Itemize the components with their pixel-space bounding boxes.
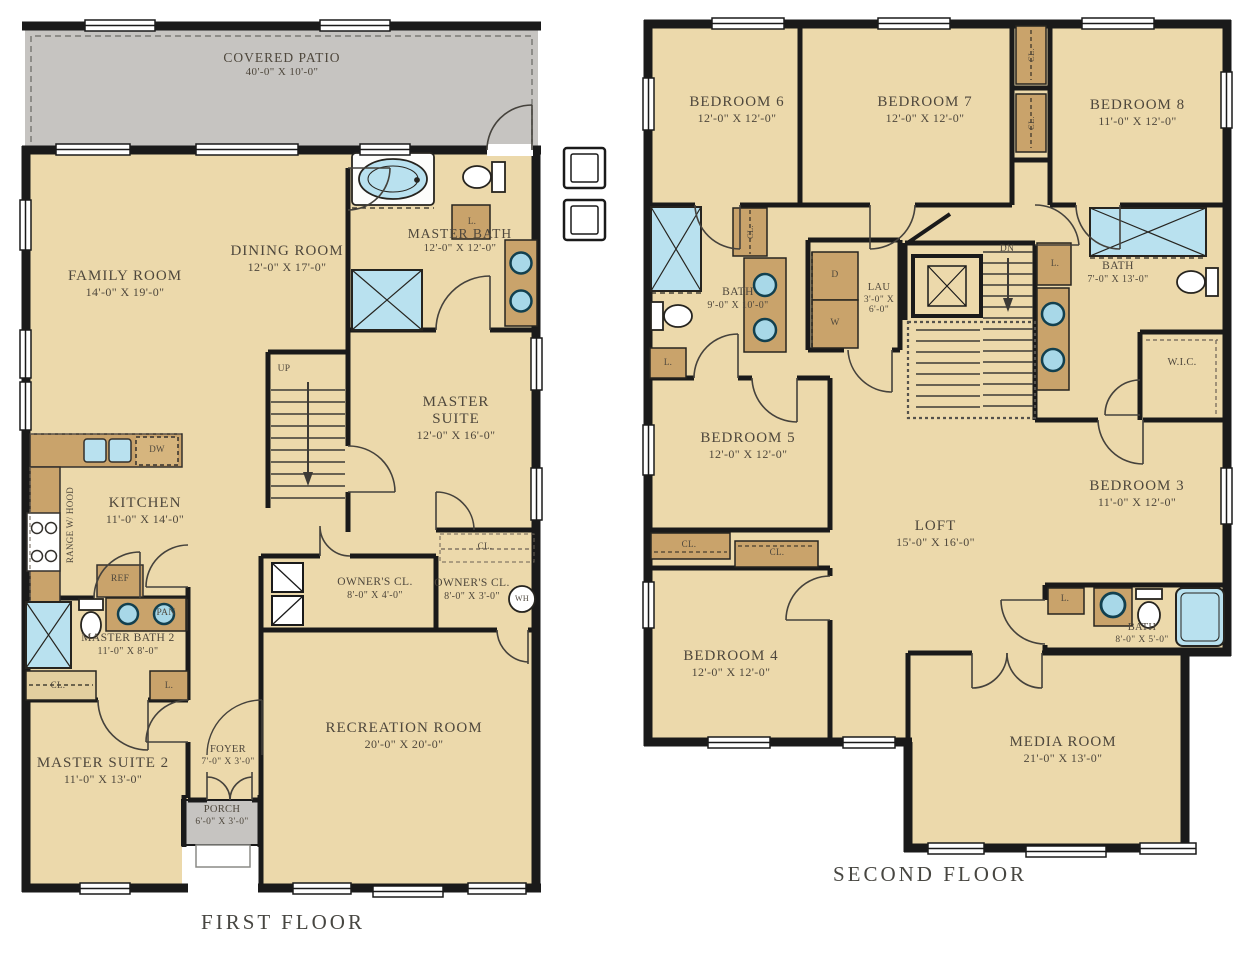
washer-label: W xyxy=(821,318,849,328)
wic-label: W.I.C. xyxy=(1150,357,1214,368)
first-floor-title: FIRST FLOOR xyxy=(133,910,433,935)
toilet xyxy=(492,162,505,192)
closet-label: CL. xyxy=(1026,98,1036,148)
water-heater-label: WH xyxy=(508,594,536,603)
sink xyxy=(754,319,776,341)
porch-area xyxy=(182,800,262,845)
sink xyxy=(118,604,138,624)
floorplan-page: COVERED PATIO 40'-0" X 10'-0" FAMILY ROO… xyxy=(0,0,1240,960)
floorplan-graphics xyxy=(0,0,1240,960)
linen-label: L. xyxy=(154,680,184,690)
toilet xyxy=(1206,268,1218,296)
sink xyxy=(754,274,776,296)
sink xyxy=(1042,303,1064,325)
up-label: UP xyxy=(268,364,300,374)
pantry-label: PAN xyxy=(147,608,185,618)
toilet xyxy=(1136,589,1162,599)
range xyxy=(27,513,60,571)
sink xyxy=(1101,593,1125,617)
second-floor-title: SECOND FLOOR xyxy=(780,862,1080,887)
closet-label: CL. xyxy=(756,547,798,557)
closet-label: CL. xyxy=(745,207,755,257)
closet-label: CL. xyxy=(668,539,710,549)
sink xyxy=(511,291,532,312)
kitchen-sink xyxy=(84,439,106,462)
second-floor-plan xyxy=(643,18,1232,857)
toilet xyxy=(651,302,663,330)
closet-label: CL. xyxy=(1026,30,1036,80)
linen-label: L. xyxy=(653,357,683,367)
linen-label: L. xyxy=(1040,258,1070,268)
sink xyxy=(511,253,532,274)
dishwasher-label: DW xyxy=(138,444,176,454)
dryer-label: D xyxy=(821,270,849,280)
porch-steps xyxy=(196,845,250,867)
first-floor-area xyxy=(25,150,538,888)
dn-label: DN xyxy=(988,244,1026,254)
tub xyxy=(1176,588,1224,646)
first-floor-plan xyxy=(20,20,605,897)
laundry-fixtures xyxy=(812,252,858,348)
detail-boxes xyxy=(564,148,605,240)
closet-label: CL. xyxy=(460,541,510,551)
range-hood-label: RANGE W/ HOOD xyxy=(65,475,75,575)
linen-label: L. xyxy=(1050,593,1080,603)
closet-label: CL. xyxy=(40,680,76,690)
second-floor-area xyxy=(648,20,1227,848)
refrigerator-label: REF xyxy=(99,574,141,584)
kitchen-sink xyxy=(109,439,131,462)
covered-patio-area xyxy=(25,28,538,150)
sink xyxy=(1042,349,1064,371)
toilet xyxy=(79,599,103,610)
linen-label: L. xyxy=(456,216,488,226)
